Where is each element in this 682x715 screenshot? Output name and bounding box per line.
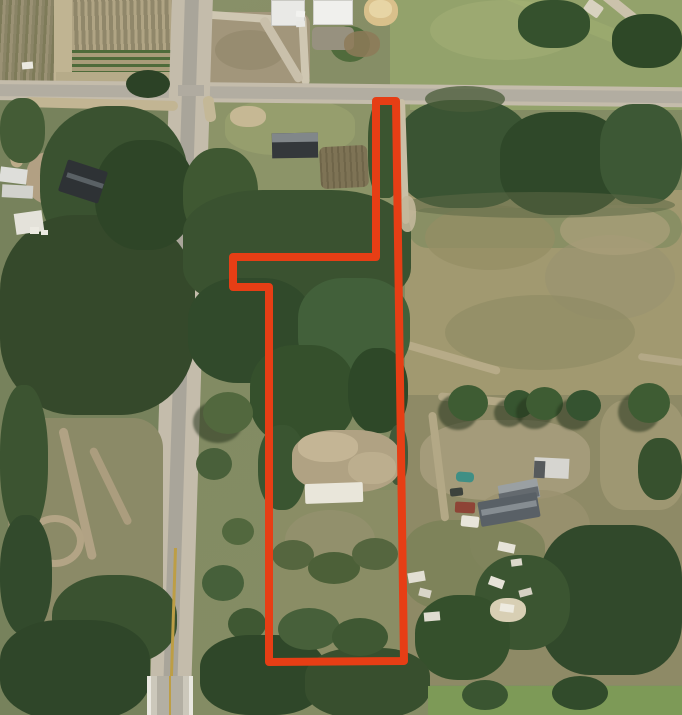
feature-layer xyxy=(0,0,682,715)
bare-patch-yard xyxy=(230,106,266,127)
field-left xyxy=(0,0,56,86)
field-tree xyxy=(566,390,601,421)
tree-over-grass xyxy=(552,676,608,710)
satellite-map[interactable] xyxy=(0,0,682,715)
tree-shadow-on-road xyxy=(425,86,505,112)
bridge-edge-right xyxy=(189,676,193,715)
white-slab xyxy=(305,482,364,504)
white-bit xyxy=(41,230,48,235)
field-main xyxy=(72,0,182,52)
boat-teal xyxy=(456,471,475,482)
forest xyxy=(0,620,150,715)
parcel-clearing-light xyxy=(298,432,358,462)
debris-brown xyxy=(344,31,380,57)
shrub-parcel xyxy=(352,538,398,570)
forest-east-band xyxy=(600,104,682,204)
tree-right-edge xyxy=(638,438,682,500)
shrub-west xyxy=(203,392,253,434)
farm-shed-dark-bay xyxy=(534,461,546,479)
truck-red xyxy=(455,501,476,513)
tree-north-1 xyxy=(518,0,590,48)
car-dark xyxy=(450,487,464,496)
forest xyxy=(0,515,52,635)
forest xyxy=(95,140,195,250)
shrub-parcel xyxy=(278,608,340,650)
tree-band-shadow xyxy=(400,192,675,218)
tree-intersection-corner xyxy=(126,70,170,98)
forest-bottom xyxy=(305,648,430,715)
shed-nw xyxy=(22,62,34,70)
vehicle-white xyxy=(296,21,305,28)
forest xyxy=(0,385,48,535)
intersection-patch xyxy=(178,85,204,96)
shrub-west xyxy=(202,565,244,601)
trailer-west xyxy=(0,166,28,184)
field-tree xyxy=(628,383,670,423)
trailer-west xyxy=(2,184,34,199)
tree-over-grass xyxy=(462,680,508,710)
sand-mound-highlight xyxy=(369,0,392,18)
field-tree xyxy=(448,385,488,421)
shrub-west xyxy=(196,448,232,480)
trailer-white-farm xyxy=(460,515,479,528)
tree-north-2 xyxy=(612,14,682,68)
shed-west xyxy=(14,210,45,235)
field-tree xyxy=(526,387,563,420)
bridge-centerline xyxy=(169,676,171,715)
garden-patch xyxy=(319,145,369,189)
debris-white xyxy=(424,611,441,621)
parcel-clearing-light xyxy=(348,452,396,484)
forest xyxy=(0,98,45,163)
shrub-parcel xyxy=(332,618,388,656)
barn-white-2 xyxy=(313,0,353,25)
vehicle-white xyxy=(296,11,305,18)
bridge-edge-left xyxy=(147,676,151,715)
driveway-east-gap xyxy=(399,196,416,232)
house-roof-lit-slope xyxy=(272,133,318,143)
forest xyxy=(348,348,408,433)
white-bit xyxy=(30,227,39,234)
shrub-west xyxy=(222,518,254,545)
